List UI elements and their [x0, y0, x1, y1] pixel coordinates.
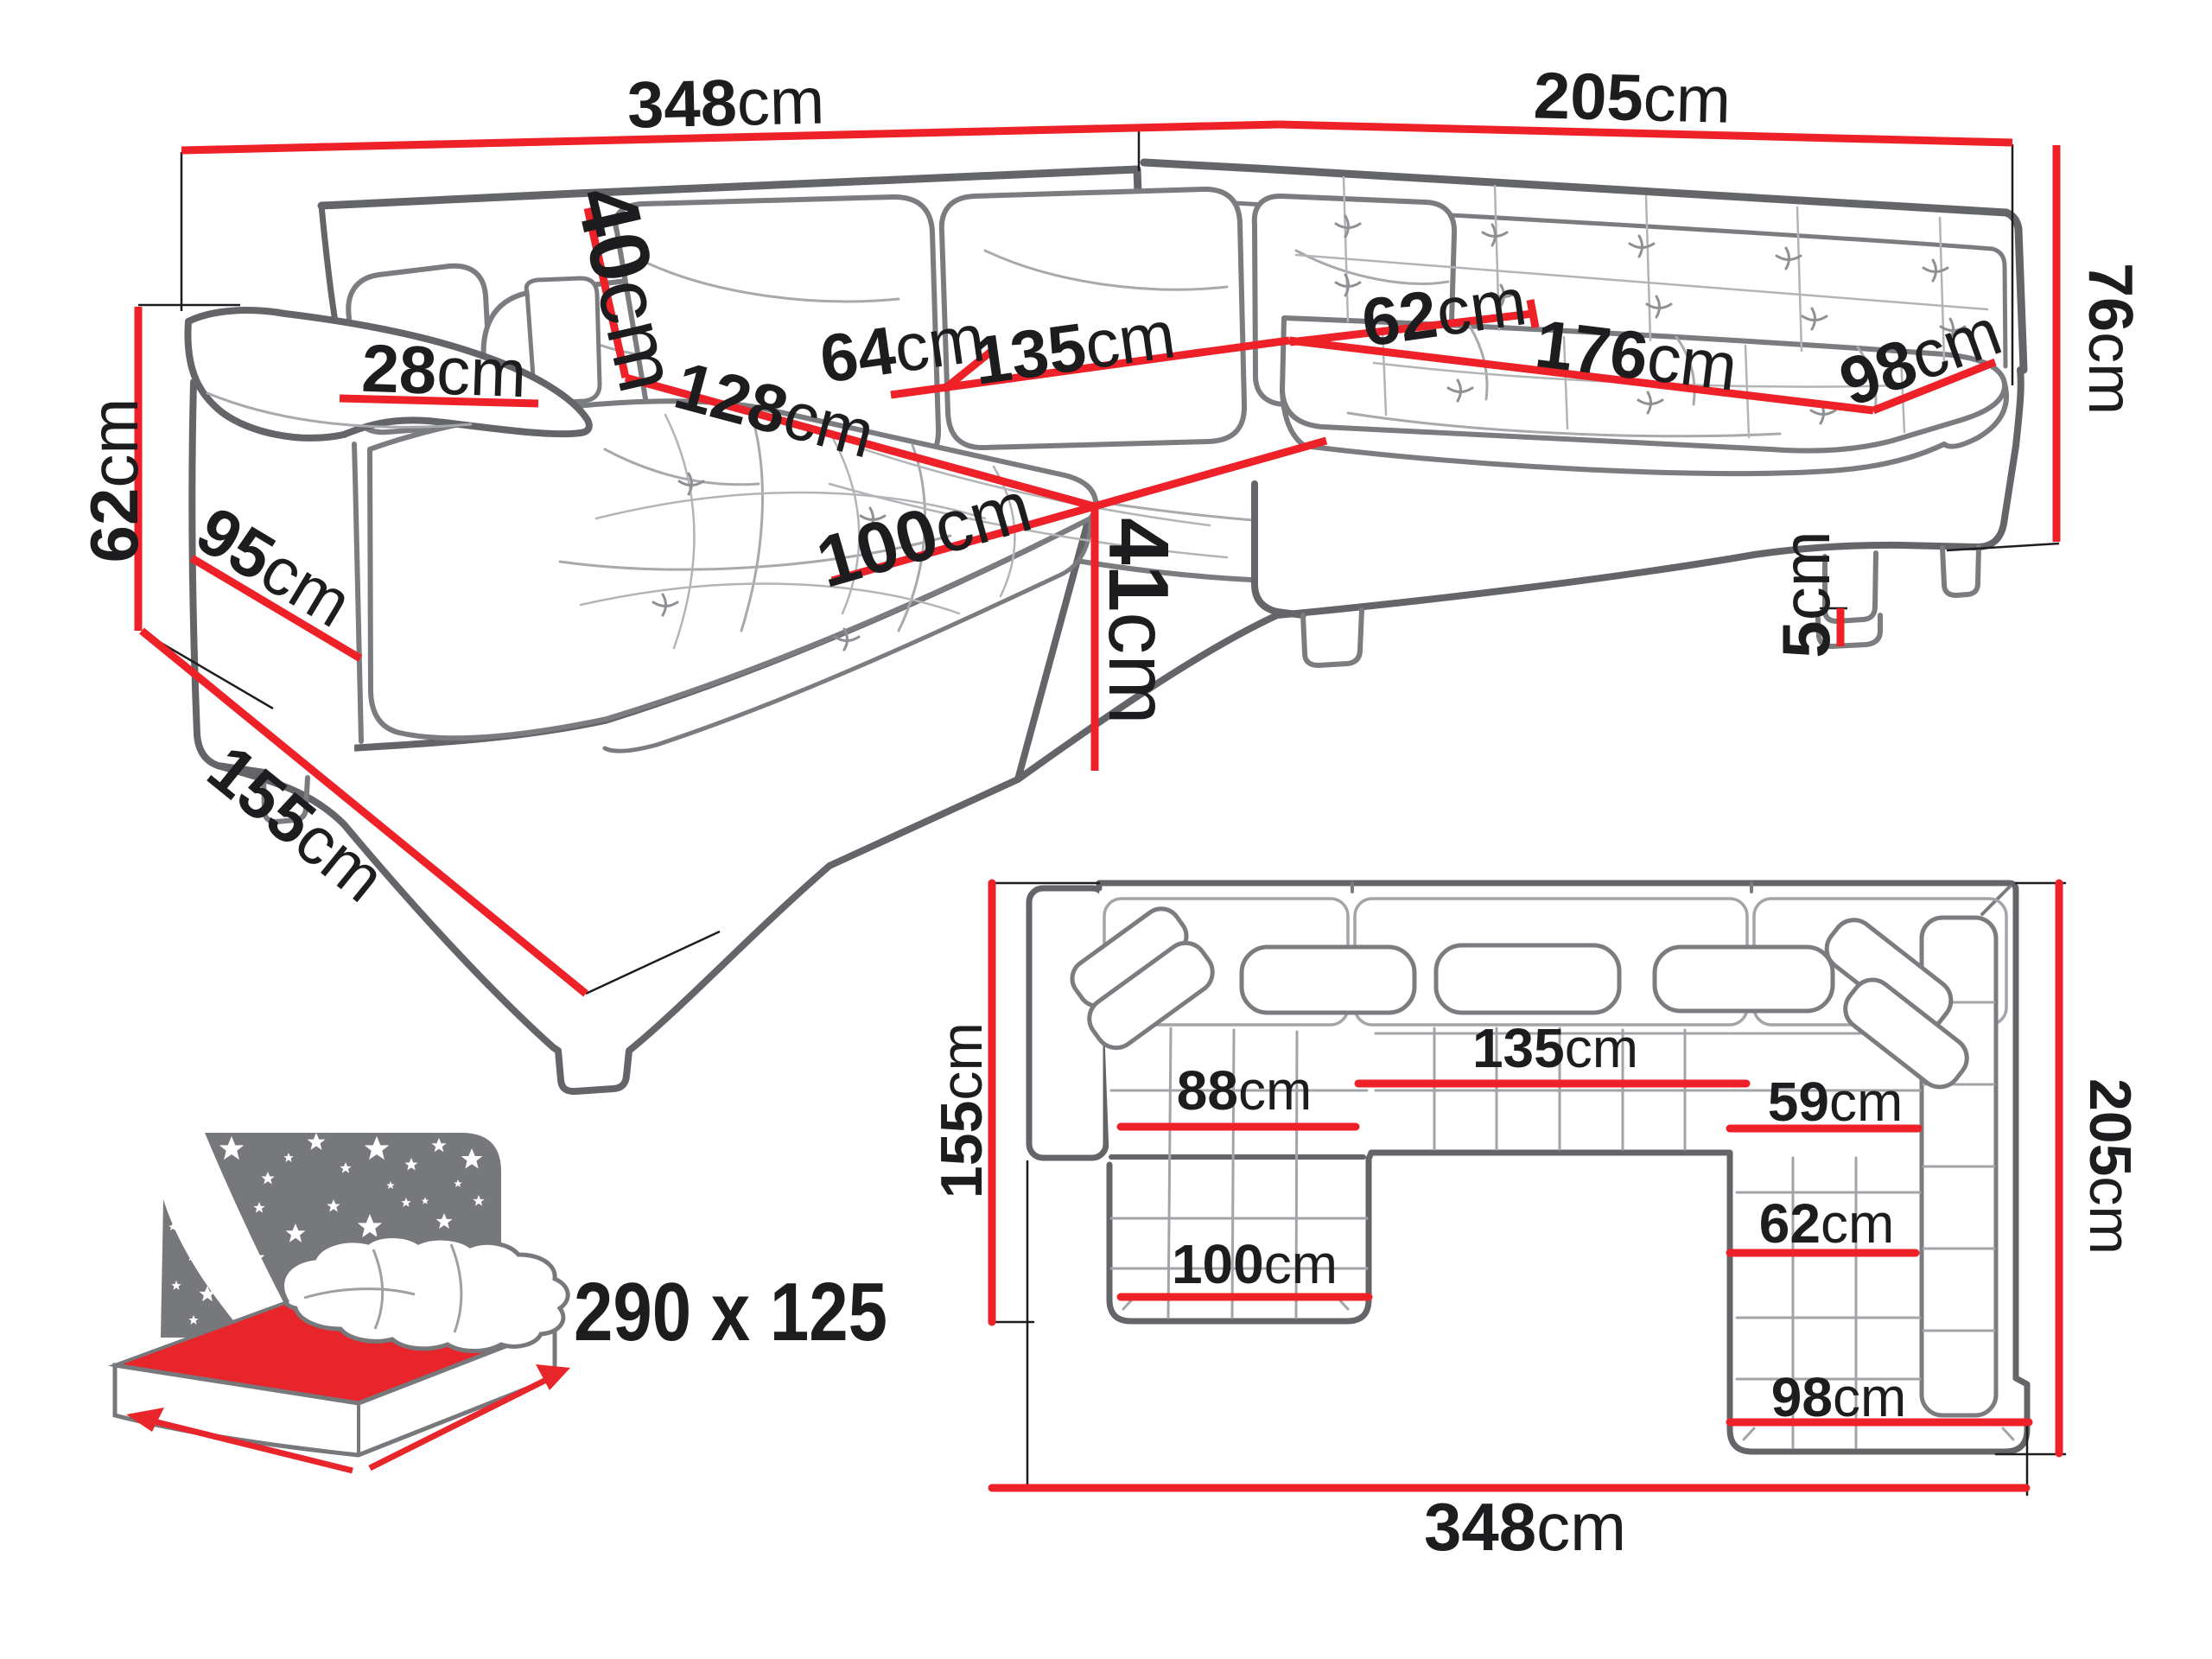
svg-text:205cm: 205cm	[2077, 1078, 2143, 1255]
svg-text:88cm: 88cm	[1177, 1059, 1313, 1122]
svg-text:135cm: 135cm	[1472, 1017, 1638, 1079]
svg-text:28cm: 28cm	[360, 330, 528, 412]
svg-text:59cm: 59cm	[1768, 1071, 1904, 1133]
svg-text:290 x 125: 290 x 125	[574, 1265, 887, 1358]
svg-text:5cm: 5cm	[1768, 531, 1844, 658]
svg-text:76cm: 76cm	[2075, 263, 2145, 415]
svg-text:100cm: 100cm	[1172, 1233, 1338, 1295]
svg-text:98cm: 98cm	[1771, 1366, 1907, 1428]
svg-text:62cm: 62cm	[1759, 1192, 1895, 1255]
svg-text:348cm: 348cm	[1424, 1489, 1626, 1565]
svg-text:41cm: 41cm	[1091, 518, 1186, 725]
svg-text:205cm: 205cm	[1533, 59, 1732, 137]
svg-text:155cm: 155cm	[929, 1022, 995, 1198]
svg-text:62cm: 62cm	[76, 398, 152, 563]
svg-text:348cm: 348cm	[626, 64, 825, 142]
